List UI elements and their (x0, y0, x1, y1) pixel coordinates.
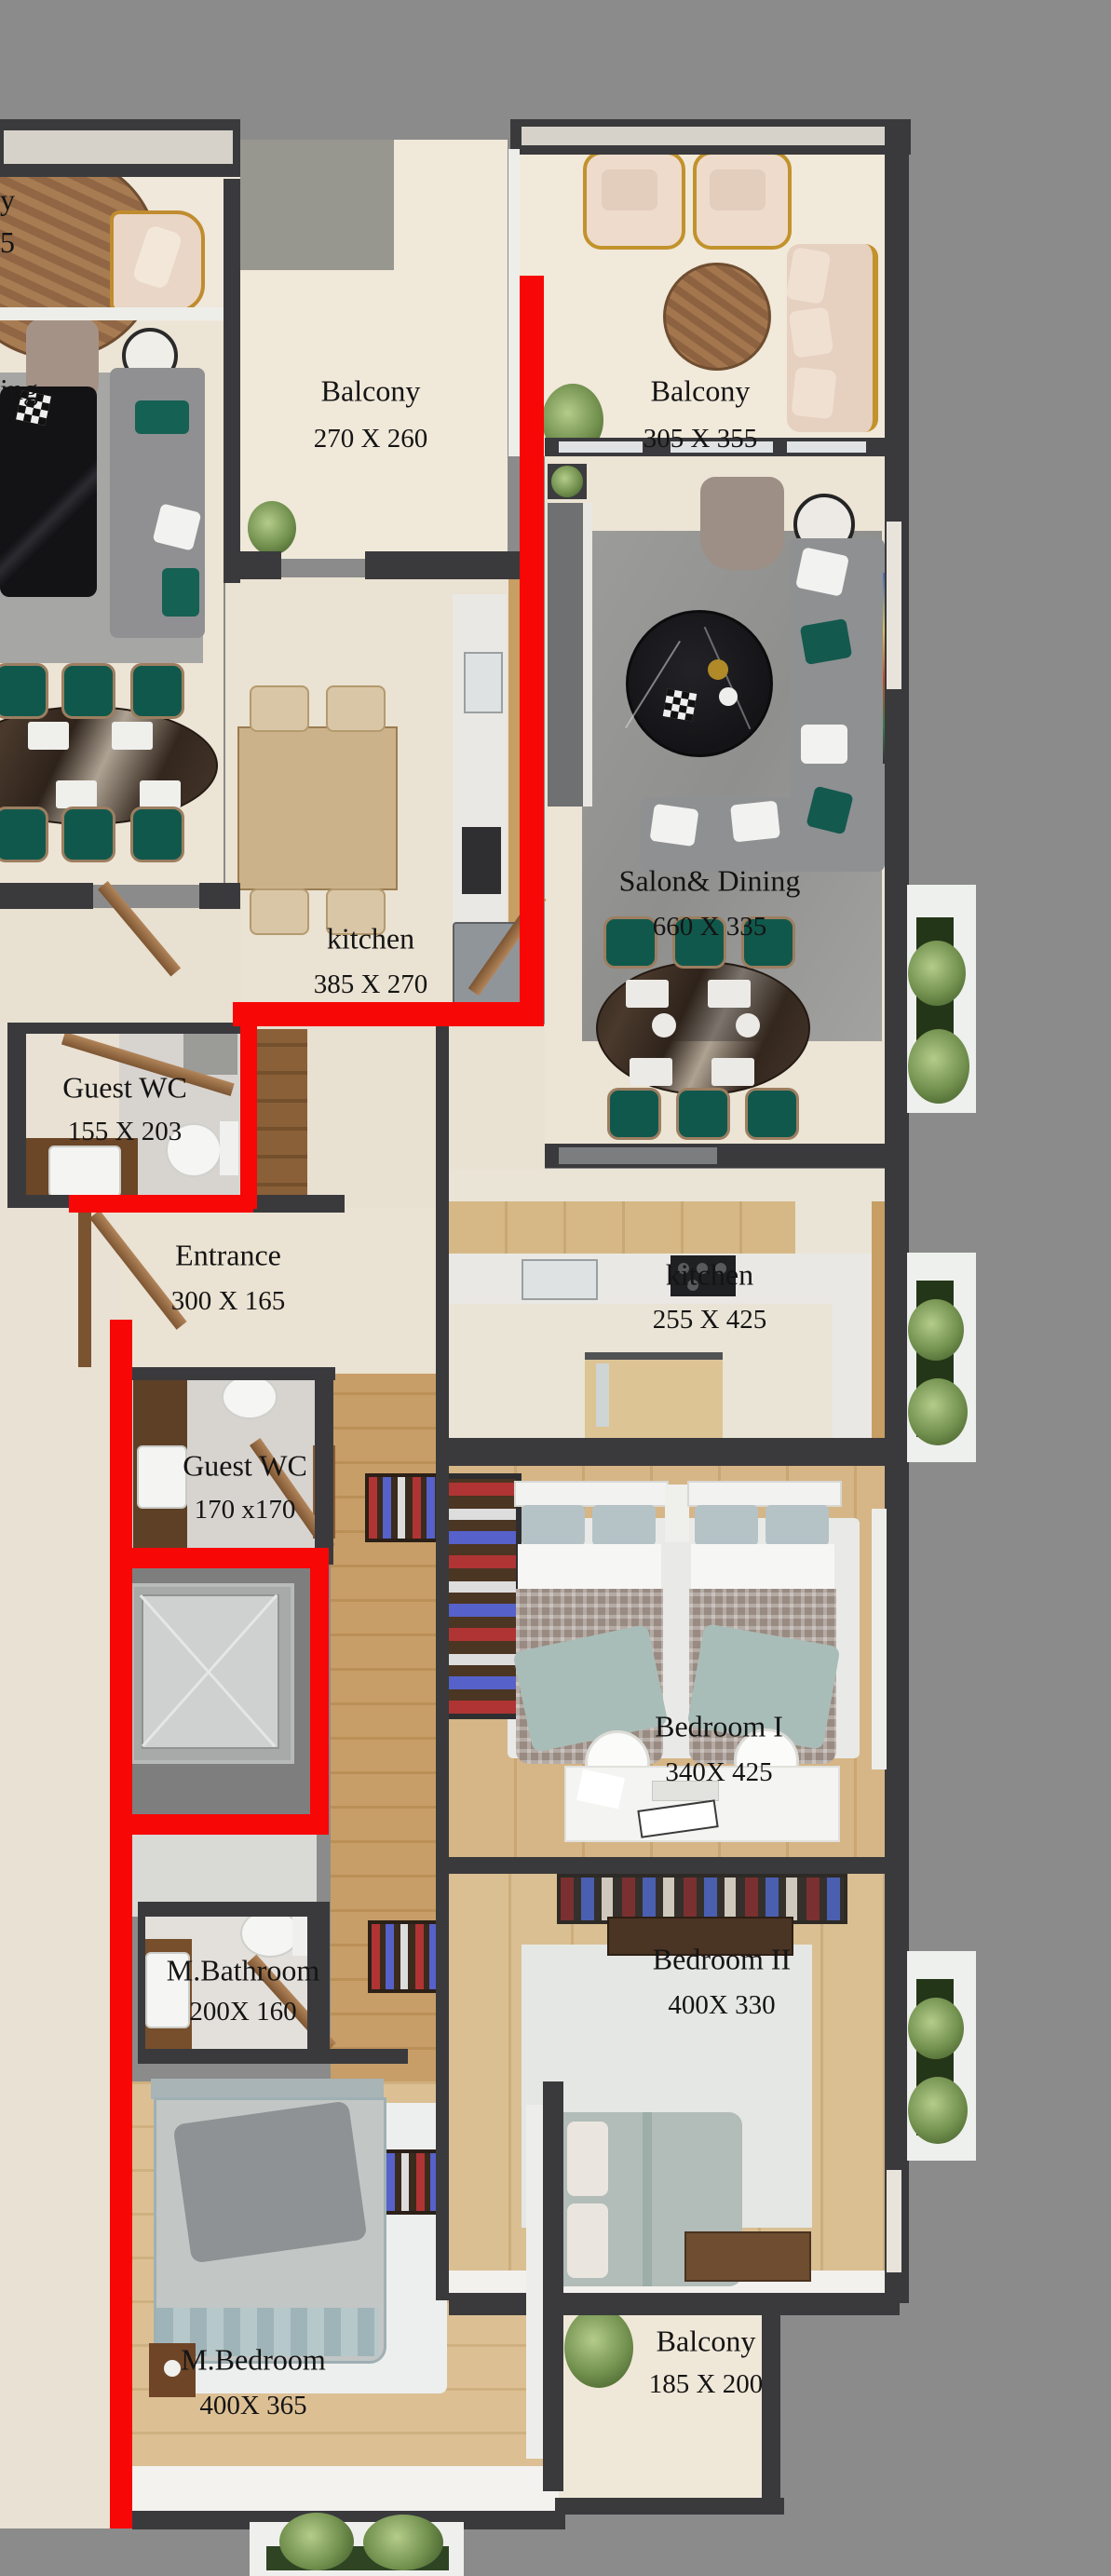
room-label-bedroom-1: Bedroom I (655, 1710, 783, 1742)
bedroom2-bench (684, 2231, 811, 2282)
window-band (508, 149, 520, 456)
tv-unit-marble (583, 503, 592, 807)
wc2-top-wall (126, 1367, 335, 1380)
room-label-kitchen-left: kitchen (327, 922, 414, 955)
salon-entry-floor (436, 1024, 545, 1169)
mbed-lamp (164, 2360, 181, 2377)
plate (630, 1058, 672, 1086)
room-label-balcony-bottom: Balcony (657, 2325, 756, 2357)
room-dims-bedroom-1: 340X 425 (665, 1758, 772, 1788)
dining-chair (61, 807, 115, 862)
red-wall-elevator-top (121, 1548, 329, 1568)
cut-label-dims: 5 (0, 225, 15, 260)
bed3-fold (643, 2112, 652, 2286)
sofa-pillow-white (730, 800, 780, 842)
window-band (0, 307, 224, 320)
wc2-sink (137, 1445, 187, 1509)
red-wall-elevator-bottom (121, 1814, 329, 1835)
bed2-pillow (695, 1505, 758, 1546)
red-wall-wc1-right (240, 1023, 257, 1209)
outer-wall-right (885, 119, 909, 2303)
wc1-shower-box (183, 1030, 237, 1075)
chair-cushion (602, 169, 657, 210)
console (559, 1147, 717, 1164)
kitchen-chair (250, 888, 309, 935)
bed2-pillow (766, 1505, 829, 1546)
white-cup (719, 687, 738, 706)
room-label-m-bedroom: M.Bedroom (181, 2343, 326, 2376)
gas-hob (462, 827, 501, 894)
room-label-kitchen-right: kitchen (666, 1258, 753, 1291)
sofa-pillow-white (649, 804, 698, 847)
plate (140, 780, 181, 808)
kitchen-sink (522, 1259, 598, 1300)
wc1-sink (48, 1146, 121, 1198)
room-dims-m-bathroom: 200X 160 (189, 1998, 296, 2027)
room-dims-kitchen-left: 385 X 270 (314, 970, 427, 1000)
glass-pane (559, 441, 643, 453)
sofa-pillow-white (801, 725, 847, 764)
sofa-pillow-teal-2 (162, 568, 199, 617)
wc1-left-wall (7, 1023, 26, 1208)
wc2-right-wall (315, 1367, 333, 1565)
black-marble-coffee-table (0, 386, 97, 597)
bottom-balcony-bottom-wall (555, 2498, 784, 2515)
round-plate (736, 1013, 760, 1037)
mbath-top-wall (138, 1902, 330, 1917)
red-wall-kitchen-right (520, 276, 544, 1021)
bedroom2-bottom-wall (449, 2293, 900, 2315)
plate (711, 1058, 754, 1086)
window-band (887, 522, 901, 689)
room-dims-balcony-bottom: 185 X 200 (649, 2370, 763, 2400)
balcony-bottom-wall (365, 551, 544, 579)
entry-top-wall (251, 1195, 345, 1213)
mbedroom-right-wall (543, 2081, 563, 2491)
entrance-door-frame (78, 1211, 91, 1367)
balcony-bottom-wall (225, 551, 281, 579)
pergola-right-panel (522, 127, 894, 145)
room-label-balcony-right: Balcony (651, 374, 751, 407)
room-label-bedroom-2: Bedroom II (653, 1943, 791, 1975)
bed3-pillow (567, 2203, 608, 2278)
left-balcony-shade (240, 140, 394, 270)
sofa-pillow (791, 367, 836, 419)
chess-board (663, 688, 698, 721)
plate (626, 980, 669, 1008)
right-unit-left-wall (436, 1023, 449, 2300)
room-label-guest-wc-1: Guest WC (62, 1071, 187, 1104)
planter-plant (908, 1378, 968, 1445)
nightstand (665, 1485, 689, 1542)
dining-chair (676, 1088, 730, 1140)
bed2-headboard (687, 1481, 842, 1507)
cut-label-balcony: y (0, 183, 15, 217)
room-dims-balcony-right: 305 X 355 (644, 425, 757, 454)
pergola-left-panel (4, 130, 233, 164)
living-bottom-wall (0, 883, 93, 909)
mbedroom-window (526, 2105, 543, 2459)
bedroom1-top-wall (436, 1451, 900, 1466)
salon-plant (551, 466, 583, 497)
planter-plant (908, 1998, 964, 2059)
living-bottom-wall (199, 883, 240, 909)
dining-chair (61, 663, 115, 719)
shoe-shelf (368, 1920, 444, 1993)
room-dims-kitchen-right: 255 X 425 (653, 1306, 766, 1335)
glass-pane (787, 441, 866, 453)
public-corridor-floor (0, 1024, 119, 2529)
room-label-salon: Salon& Dining (619, 864, 801, 897)
sofa-pillow-teal (135, 400, 189, 434)
balcony-plant (564, 2308, 633, 2388)
wc1-top-wall (7, 1023, 257, 1034)
window-band (887, 2170, 901, 2272)
room-label-balcony-left: Balcony (321, 374, 421, 407)
planter-plant (279, 2513, 354, 2570)
dining-chair (130, 807, 184, 862)
mbath-bottom-wall (138, 2049, 408, 2064)
island-towel (596, 1363, 609, 1427)
dining-chair (130, 663, 184, 719)
kitchen-chair (250, 685, 309, 732)
mbed-headboard (151, 2079, 384, 2099)
bedroom1-closet (438, 1473, 522, 1719)
room-dims-guest-wc-2: 170 x170 (195, 1496, 296, 1525)
plate (28, 722, 69, 750)
red-wall-left-boundary (110, 1320, 132, 2529)
round-coffee-table (663, 263, 771, 371)
shoe-shelf (365, 1473, 443, 1542)
bed1-pillow (522, 1505, 585, 1546)
floor-plan: y 5 ing Balcony 270 X 260 Balcony 305 X … (0, 0, 1111, 2576)
planter-plant (363, 2515, 443, 2570)
dining-chair (607, 1088, 661, 1140)
hallway-floor (0, 908, 242, 1031)
red-wall-kitchen-bottom (233, 1002, 544, 1026)
planter-plant (908, 1299, 964, 1361)
wc2-toilet (222, 1375, 278, 1419)
red-wall-elevator-right (310, 1548, 329, 1835)
bedrooms-divider-wall (449, 1857, 887, 1874)
dining-chair (745, 1088, 799, 1140)
mbed-blanket (172, 2101, 367, 2264)
kitchen-table (237, 726, 398, 890)
mbath-right-wall (307, 1917, 330, 2064)
room-dims-balcony-left: 270 X 260 (314, 425, 427, 454)
planter-plant (908, 2077, 968, 2144)
dining-chair (0, 807, 48, 862)
room-dims-salon: 660 X 335 (653, 913, 766, 942)
gold-tray (708, 659, 728, 680)
black-marble-round-table (626, 610, 773, 757)
plate (708, 980, 751, 1008)
kitchen-chair (326, 685, 386, 732)
bed1-headboard (514, 1481, 669, 1507)
room-dims-entrance: 300 X 165 (171, 1287, 285, 1317)
salon-armchair (700, 477, 784, 570)
plate (56, 780, 97, 808)
room-dims-bedroom-2: 400X 330 (668, 1991, 775, 2021)
mbath-left-wall (138, 1917, 145, 2064)
kitchen-sink (464, 652, 503, 713)
planter-plant (908, 1029, 969, 1104)
balcony-divider-wall (224, 179, 240, 583)
chair-cushion (710, 169, 766, 210)
room-dims-guest-wc-1: 155 X 203 (68, 1118, 182, 1147)
bed3-pillow (567, 2122, 608, 2196)
sofa-pillow (789, 306, 834, 358)
dining-chair (0, 663, 48, 719)
bed1-pillow (592, 1505, 656, 1546)
cut-label-living: ing (0, 373, 38, 407)
room-dims-m-bedroom: 400X 365 (199, 2392, 306, 2421)
bottom-balcony-right-wall (762, 2314, 780, 2514)
kitchen-cabinets (449, 1201, 795, 1254)
wc1-toilet-tank (220, 1121, 238, 1175)
dining-chair (603, 916, 657, 969)
red-wall-entrance-top (69, 1195, 253, 1213)
sofa-pillow-teal (800, 618, 853, 665)
balcony-plant (248, 501, 296, 555)
round-plate (652, 1013, 676, 1037)
room-label-m-bathroom: M.Bathroom (167, 1954, 319, 1986)
tv-unit (548, 503, 583, 807)
room-label-entrance: Entrance (175, 1239, 281, 1271)
plate (112, 722, 153, 750)
window-band (872, 1509, 887, 1769)
planter-plant (908, 941, 966, 1006)
room-label-guest-wc-2: Guest WC (183, 1449, 307, 1482)
wc1-door-panel (257, 1029, 307, 1211)
